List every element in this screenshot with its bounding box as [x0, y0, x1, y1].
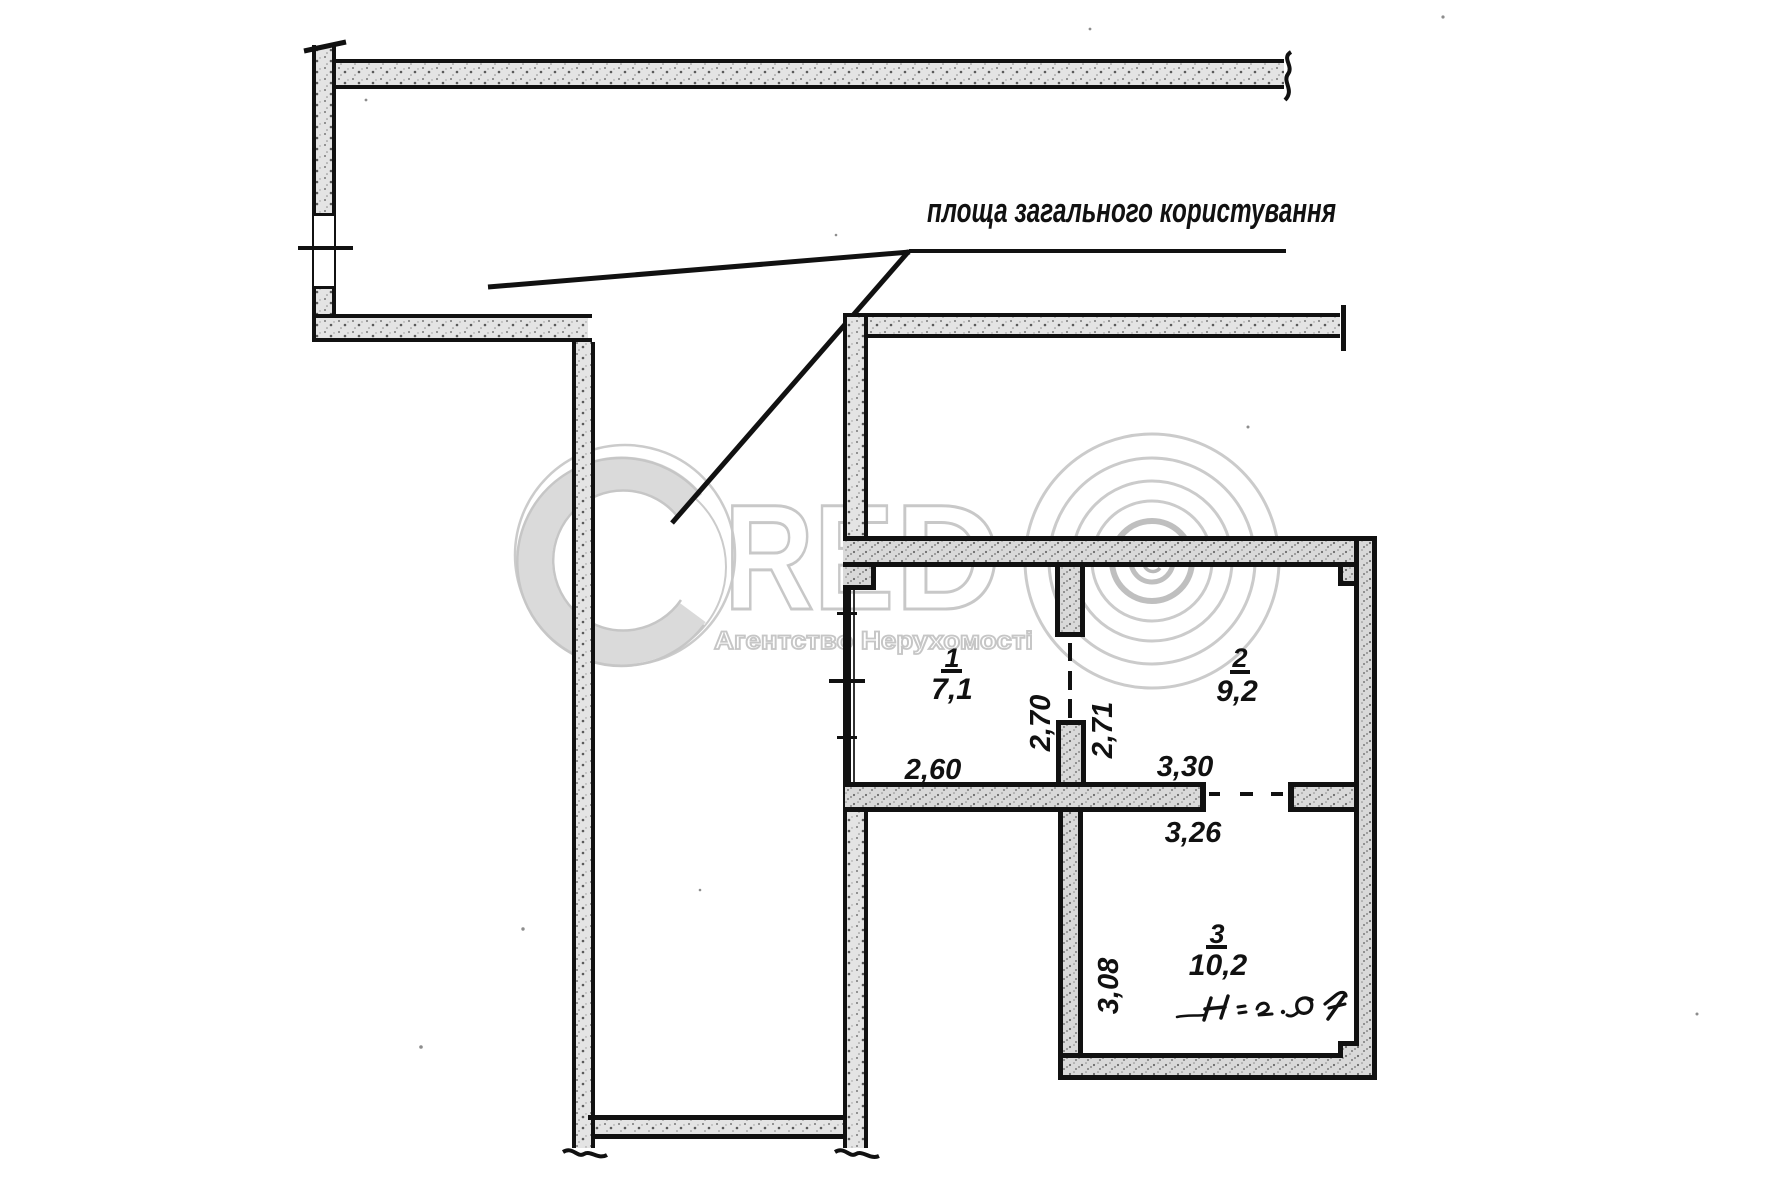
- svg-text:2,70: 2,70: [1025, 695, 1057, 752]
- svg-text:площа загального користування: площа загального користування: [927, 192, 1336, 230]
- svg-text:9,2: 9,2: [1216, 675, 1258, 708]
- svg-text:R: R: [724, 473, 814, 641]
- svg-text:3,08: 3,08: [1093, 957, 1125, 1014]
- svg-text:2: 2: [1231, 643, 1247, 673]
- svg-text:2,71: 2,71: [1087, 702, 1119, 759]
- svg-text:3: 3: [1209, 919, 1224, 949]
- svg-text:3,26: 3,26: [1165, 817, 1222, 849]
- svg-text:10,2: 10,2: [1189, 949, 1248, 982]
- svg-text:Агентство Нерухомості: Агентство Нерухомості: [714, 627, 1033, 655]
- svg-text:3,30: 3,30: [1157, 751, 1213, 783]
- svg-text:7,1: 7,1: [931, 673, 973, 706]
- svg-text:1: 1: [944, 643, 959, 673]
- svg-text:2,60: 2,60: [904, 754, 961, 786]
